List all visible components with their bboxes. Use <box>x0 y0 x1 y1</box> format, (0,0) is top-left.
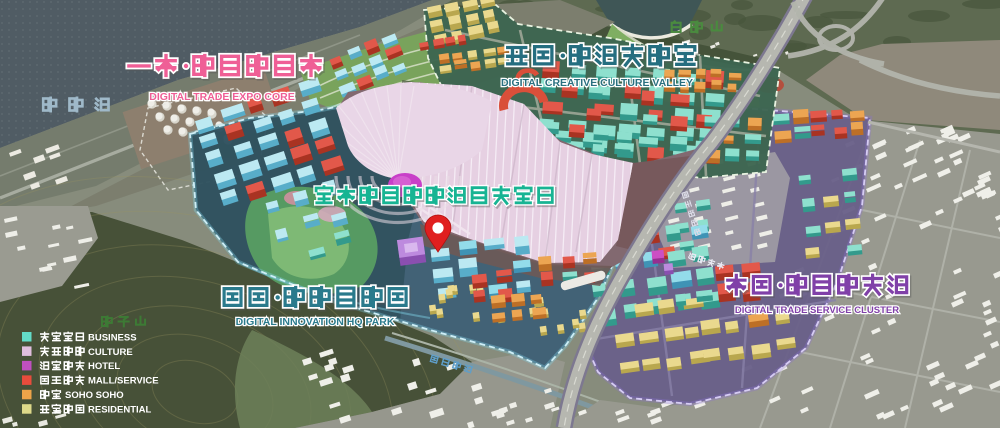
svg-text:HOTEL: HOTEL <box>88 361 120 372</box>
svg-text:DIGITAL CREATIVE CULTURE VALLE: DIGITAL CREATIVE CULTURE VALLEY <box>501 77 693 89</box>
svg-text:DIGITAL TRADE SERVICE CLUSTER: DIGITAL TRADE SERVICE CLUSTER <box>735 305 899 316</box>
svg-text:MALL/SERVICE: MALL/SERVICE <box>88 376 159 387</box>
svg-text:CULTURE: CULTURE <box>88 347 133 358</box>
svg-text:SOHO SOHO: SOHO SOHO <box>65 390 124 401</box>
svg-text:BUSINESS: BUSINESS <box>88 332 137 343</box>
svg-text:DIGITAL TRADE EXPO CORE: DIGITAL TRADE EXPO CORE <box>149 91 294 103</box>
svg-text:DIGITAL INNOVATION HQ PARK: DIGITAL INNOVATION HQ PARK <box>236 316 395 328</box>
svg-text:RESIDENTIAL: RESIDENTIAL <box>88 405 152 416</box>
